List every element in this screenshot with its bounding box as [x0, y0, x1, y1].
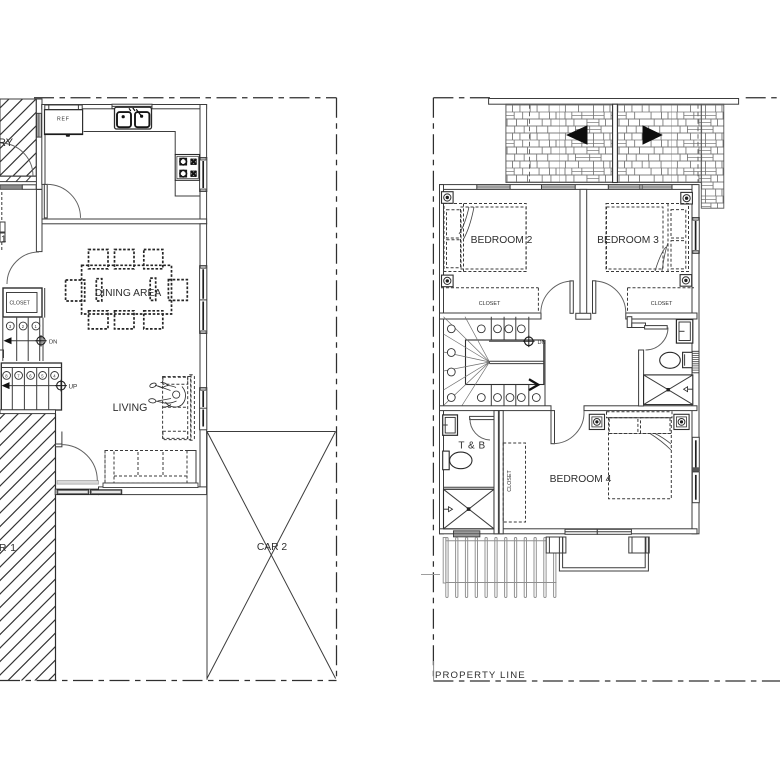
svg-text:UP: UP: [69, 384, 78, 391]
svg-text:T & B: T & B: [458, 441, 485, 452]
svg-text:REF: REF: [57, 117, 70, 123]
svg-text:CLOSET: CLOSET: [10, 301, 30, 307]
svg-text:1: 1: [1, 234, 6, 245]
svg-text:DN: DN: [49, 340, 57, 346]
svg-text:CAR 2: CAR 2: [257, 542, 288, 553]
svg-text:RY: RY: [0, 137, 14, 149]
svg-text:BEDROOM 2: BEDROOM 2: [471, 235, 533, 246]
svg-text:DN: DN: [538, 340, 546, 346]
svg-text:BEDROOM 4: BEDROOM 4: [550, 474, 612, 485]
svg-text:BEDROOM 3: BEDROOM 3: [597, 235, 659, 246]
svg-text:LIVING: LIVING: [113, 402, 148, 414]
svg-text:CLOSET: CLOSET: [479, 301, 501, 307]
svg-text:CLOSET: CLOSET: [507, 470, 513, 492]
svg-text:DINING AREA: DINING AREA: [95, 288, 162, 299]
svg-text:CLOSET: CLOSET: [651, 301, 673, 307]
svg-text:PROPERTY LINE: PROPERTY LINE: [435, 670, 526, 681]
svg-text:R 1: R 1: [0, 543, 17, 554]
